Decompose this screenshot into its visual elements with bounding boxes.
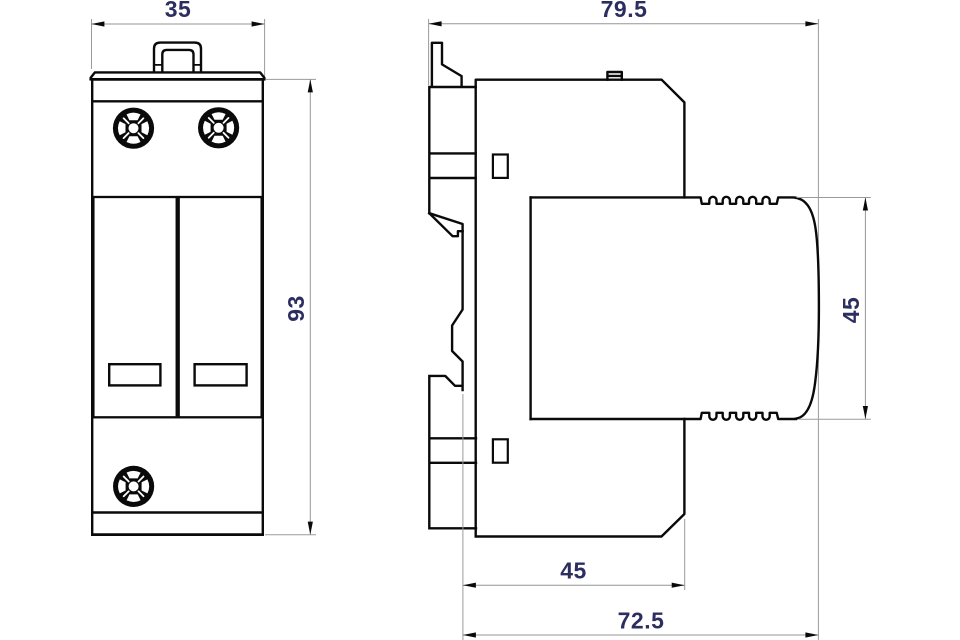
svg-text:45: 45: [838, 297, 864, 324]
svg-text:79.5: 79.5: [601, 0, 648, 22]
svg-text:45: 45: [560, 558, 587, 584]
svg-text:93: 93: [283, 295, 309, 322]
svg-text:35: 35: [165, 0, 192, 22]
svg-text:72.5: 72.5: [618, 608, 665, 634]
